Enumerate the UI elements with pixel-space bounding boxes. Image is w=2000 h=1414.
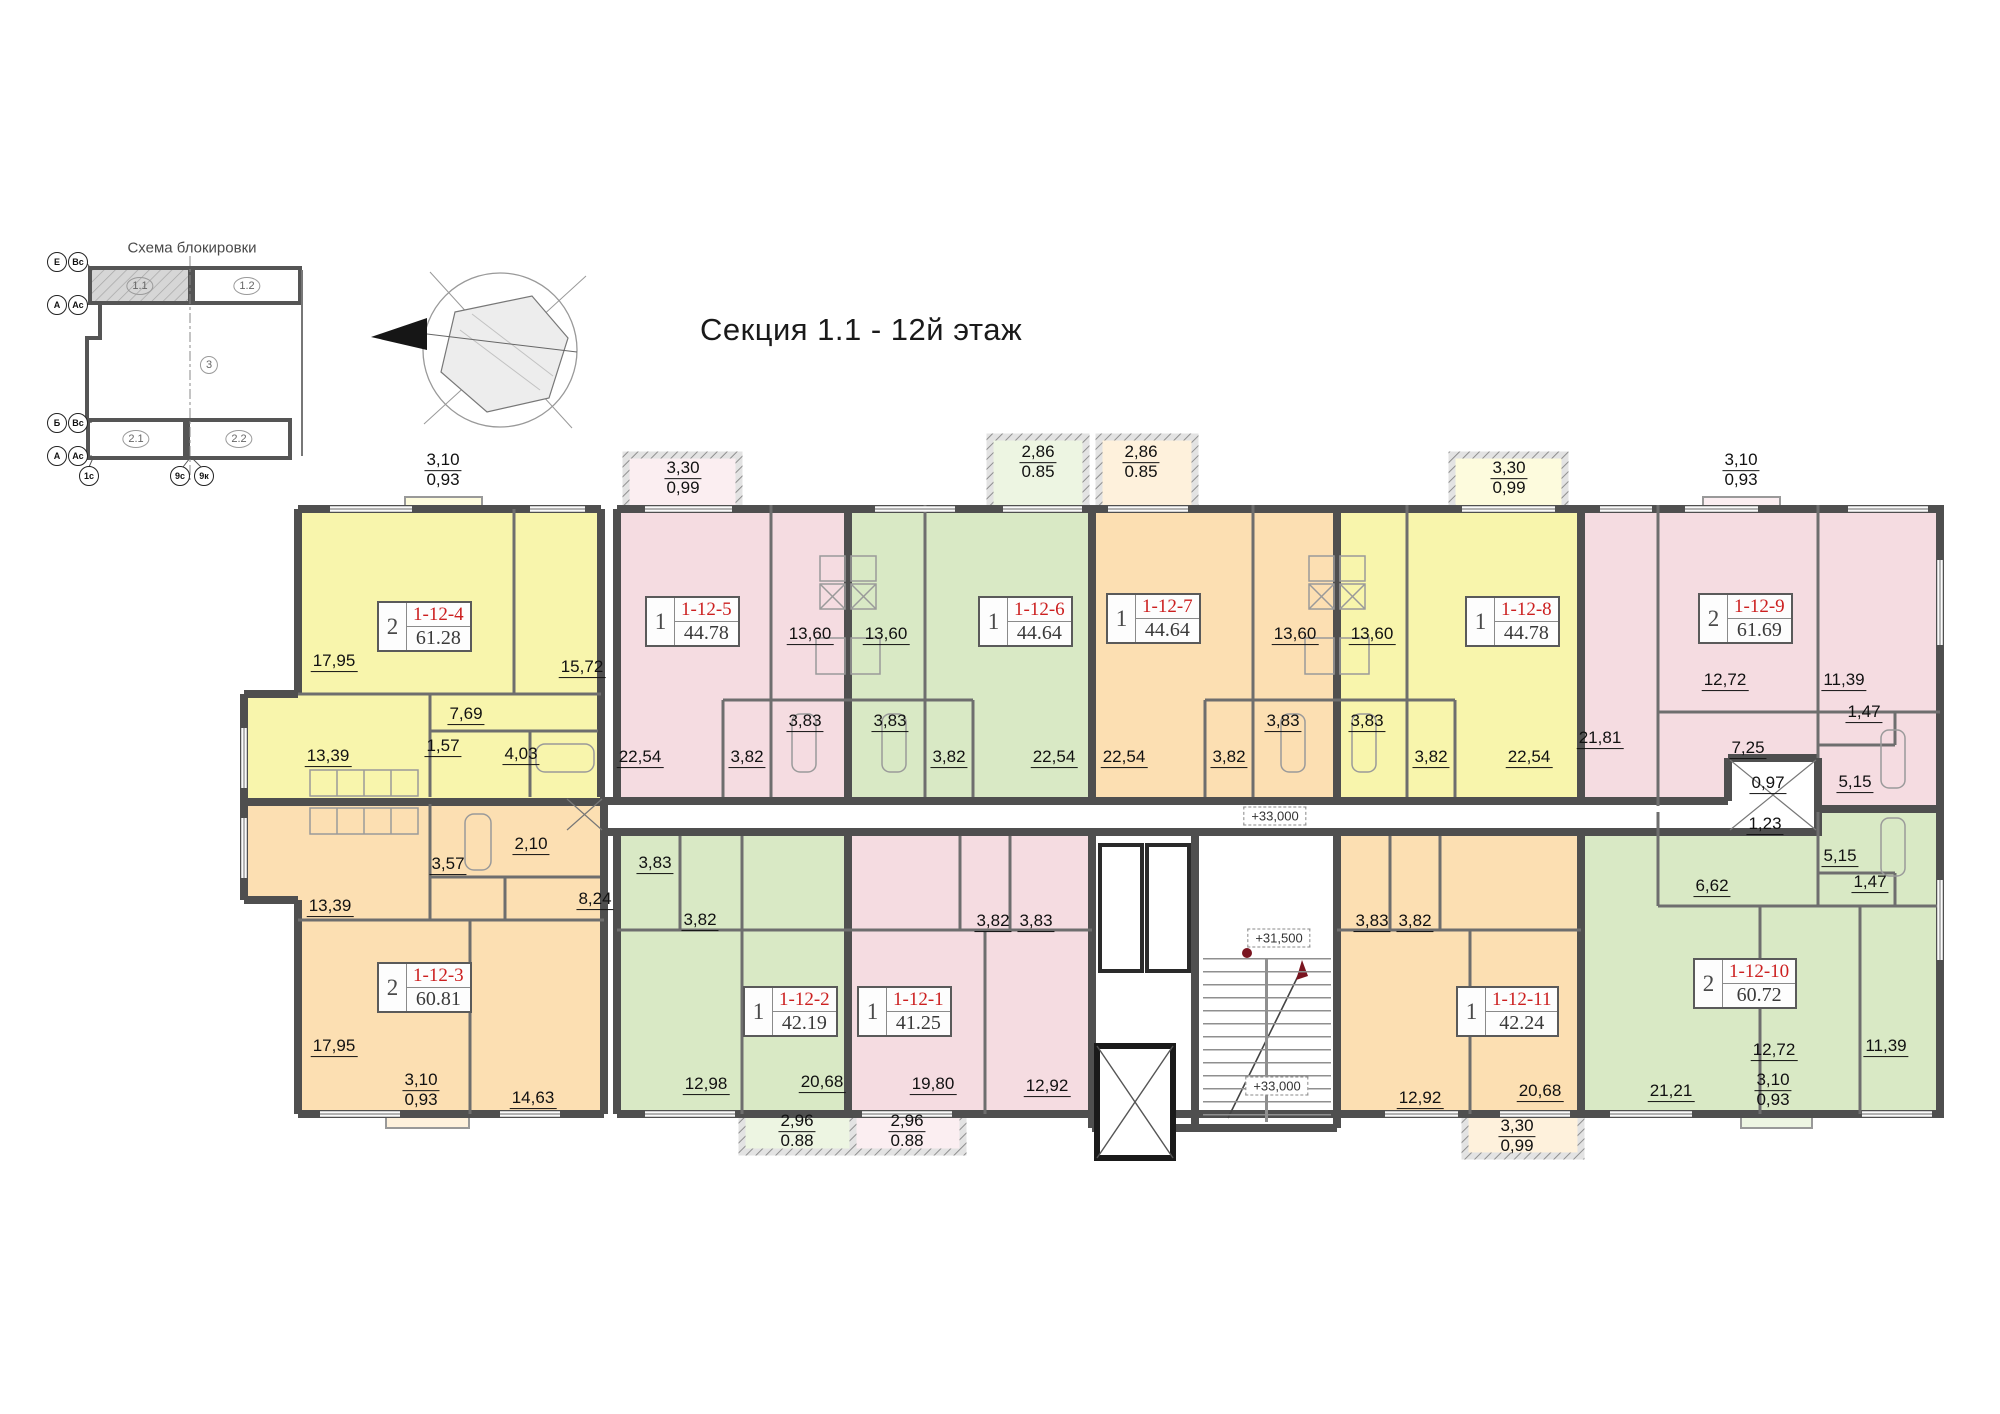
axis-bubble-А: А: [47, 295, 67, 315]
balcony-area-label: 3,100,93: [424, 451, 461, 489]
room-area-label: 12,72: [1751, 1041, 1798, 1061]
room-area-label: 21,21: [1648, 1082, 1695, 1102]
block-scheme-title: Схема блокировки: [127, 240, 256, 257]
room-area-value: 2,10: [512, 835, 549, 855]
room-area-value: 3,83: [636, 854, 673, 874]
room-area-label: 3,82: [974, 912, 1011, 932]
balcony-area-full: 3,10: [424, 451, 461, 471]
room-area-label: 3,83: [786, 712, 823, 732]
room-area-value: 0,97: [1749, 774, 1786, 794]
balcony-area-full: 2,86: [1019, 443, 1056, 463]
room-area-label: 2,10: [512, 835, 549, 855]
apartment-stamp-1-12-5: 11-12-544.78: [645, 596, 740, 647]
balcony-area-reduced: 0,93: [1724, 471, 1757, 489]
room-area-label: 3,82: [930, 748, 967, 768]
elevation-mark: +31,500: [1247, 929, 1310, 948]
room-area-label: 1,47: [1845, 703, 1882, 723]
apartment-area: 42.24: [1486, 1012, 1557, 1035]
room-area-label: 3,57: [429, 855, 466, 875]
room-area-value: 3,57: [429, 855, 466, 875]
room-count: 1: [1467, 598, 1495, 645]
apartment-stamp-1-12-3: 21-12-360.81: [377, 962, 472, 1013]
scheme-section-1.1: 1.1: [126, 277, 153, 295]
room-area-value: 7,25: [1729, 739, 1766, 759]
room-area-label: 11,39: [1821, 671, 1866, 691]
room-area-value: 15,72: [559, 658, 606, 678]
apartment-number: 1-12-7: [1136, 595, 1199, 619]
room-area-value: 11,39: [1821, 671, 1866, 691]
room-area-value: 3,83: [1353, 912, 1390, 932]
balcony-area-full: 3,30: [664, 459, 701, 479]
balcony-area-reduced: 0,93: [404, 1091, 437, 1109]
axis-bubble-Б: Б: [47, 413, 67, 433]
room-count: 2: [1700, 595, 1728, 642]
room-count: 1: [859, 988, 887, 1035]
room-area-label: 5,15: [1821, 847, 1858, 867]
room-area-label: 13,60: [787, 625, 834, 645]
apartment-area: 60.72: [1723, 984, 1795, 1007]
balcony-area-full: 2,86: [1122, 443, 1159, 463]
room-area-value: 12,98: [683, 1075, 730, 1095]
apartment-area: 44.78: [675, 622, 738, 645]
room-area-value: 13,39: [307, 897, 354, 917]
page-title: Секция 1.1 - 12й этаж: [700, 312, 1022, 348]
room-area-label: 6,62: [1693, 877, 1730, 897]
room-area-value: 13,60: [1272, 625, 1319, 645]
room-area-label: 13,60: [1272, 625, 1319, 645]
axis-bubble-Вс: Вс: [68, 413, 88, 433]
scheme-section-1.2: 1.2: [233, 277, 260, 295]
room-area-value: 22,54: [1031, 748, 1078, 768]
balcony-area-reduced: 0.85: [1021, 463, 1054, 481]
room-count: 1: [980, 598, 1008, 645]
apartment-stamp-1-12-9: 21-12-961.69: [1698, 593, 1793, 644]
room-area-value: 20,68: [1517, 1082, 1564, 1102]
label-overlay: Секция 1.1 - 12й этаж Схема блокировки 1…: [0, 0, 2000, 1414]
room-area-label: 20,68: [799, 1073, 846, 1093]
balcony-area-reduced: 0.88: [890, 1132, 923, 1150]
apartment-stamp-1-12-1: 11-12-141.25: [857, 986, 952, 1037]
apartment-number: 1-12-1: [887, 988, 950, 1012]
room-area-label: 22,54: [1506, 748, 1553, 768]
room-count: 1: [745, 988, 773, 1035]
room-area-label: 22,54: [1031, 748, 1078, 768]
room-area-value: 13,60: [1349, 625, 1396, 645]
balcony-area-full: 3,10: [1754, 1071, 1791, 1091]
room-area-label: 7,69: [447, 705, 484, 725]
room-area-value: 12,92: [1024, 1077, 1071, 1097]
scheme-section-3: 3: [200, 356, 218, 374]
room-area-label: 21,81: [1577, 729, 1624, 749]
room-area-value: 5,15: [1836, 773, 1873, 793]
room-area-value: 17,95: [311, 1037, 358, 1057]
room-area-value: 3,82: [1396, 912, 1433, 932]
room-area-value: 20,68: [799, 1073, 846, 1093]
room-area-value: 12,72: [1702, 671, 1749, 691]
room-area-label: 3,83: [1353, 912, 1390, 932]
room-area-label: 3,83: [871, 712, 908, 732]
room-area-value: 12,92: [1397, 1089, 1444, 1109]
room-area-value: 12,72: [1751, 1041, 1798, 1061]
room-area-value: 22,54: [1101, 748, 1148, 768]
axis-bubble-Ас: Ас: [68, 446, 88, 466]
room-area-value: 6,62: [1693, 877, 1730, 897]
axis-bubble-1с: 1с: [79, 466, 99, 486]
apartment-stamp-1-12-8: 11-12-844.78: [1465, 596, 1560, 647]
room-area-label: 1,57: [424, 737, 461, 757]
room-area-label: 20,68: [1517, 1082, 1564, 1102]
room-area-label: 12,92: [1397, 1089, 1444, 1109]
room-area-label: 3,82: [1412, 748, 1449, 768]
elevation-mark: +33,000: [1245, 1077, 1308, 1096]
room-area-label: 19,80: [910, 1075, 957, 1095]
room-area-value: 3,82: [1412, 748, 1449, 768]
balcony-area-full: 3,30: [1498, 1117, 1535, 1137]
room-area-label: 13,39: [305, 747, 352, 767]
room-area-value: 3,82: [930, 748, 967, 768]
room-area-label: 11,39: [1863, 1037, 1908, 1057]
room-area-value: 1,47: [1851, 873, 1888, 893]
apartment-number: 1-12-8: [1495, 598, 1558, 622]
room-area-label: 1,23: [1746, 815, 1783, 835]
balcony-area-full: 3,30: [1490, 459, 1527, 479]
room-area-value: 3,82: [1210, 748, 1247, 768]
room-area-value: 3,82: [974, 912, 1011, 932]
balcony-area-label: 3,300,99: [1490, 459, 1527, 497]
room-area-label: 12,72: [1702, 671, 1749, 691]
balcony-area-label: 3,100,93: [1754, 1071, 1791, 1109]
room-area-value: 5,15: [1821, 847, 1858, 867]
room-count: 1: [647, 598, 675, 645]
axis-bubble-Е: Е: [47, 252, 67, 272]
apartment-stamp-1-12-6: 11-12-644.64: [978, 596, 1073, 647]
balcony-area-full: 3,10: [1722, 451, 1759, 471]
balcony-area-reduced: 0,99: [1500, 1137, 1533, 1155]
apartment-area: 61.69: [1728, 619, 1791, 642]
apartment-number: 1-12-9: [1728, 595, 1791, 619]
room-area-label: 14,63: [510, 1089, 557, 1109]
room-area-value: 11,39: [1863, 1037, 1908, 1057]
balcony-area-label: 3,100,93: [1722, 451, 1759, 489]
apartment-number: 1-12-10: [1723, 960, 1795, 984]
room-area-value: 13,60: [787, 625, 834, 645]
room-area-value: 8,24: [576, 890, 613, 910]
room-area-label: 3,83: [1348, 712, 1385, 732]
apartment-number: 1-12-11: [1486, 988, 1557, 1012]
room-area-label: 3,82: [1210, 748, 1247, 768]
room-area-value: 3,83: [871, 712, 908, 732]
room-area-value: 3,82: [728, 748, 765, 768]
room-area-label: 8,24: [576, 890, 613, 910]
room-area-label: 17,95: [311, 652, 358, 672]
apartment-area: 61.28: [407, 627, 470, 650]
room-area-label: 12,98: [683, 1075, 730, 1095]
room-area-value: 3,83: [1017, 912, 1054, 932]
apartment-stamp-1-12-7: 11-12-744.64: [1106, 593, 1201, 644]
room-area-label: 3,83: [1264, 712, 1301, 732]
apartment-area: 60.81: [407, 988, 470, 1011]
apartment-area: 44.78: [1495, 622, 1558, 645]
room-area-label: 22,54: [617, 748, 664, 768]
axis-bubble-9к: 9к: [194, 466, 214, 486]
balcony-area-full: 2,96: [778, 1112, 815, 1132]
room-area-value: 19,80: [910, 1075, 957, 1095]
room-count: 2: [379, 964, 407, 1011]
balcony-area-reduced: 0,93: [426, 471, 459, 489]
room-area-label: 17,95: [311, 1037, 358, 1057]
room-area-value: 21,21: [1648, 1082, 1695, 1102]
room-area-value: 1,47: [1845, 703, 1882, 723]
balcony-area-reduced: 0.85: [1124, 463, 1157, 481]
room-area-label: 4,03: [502, 745, 539, 765]
room-area-label: 3,83: [1017, 912, 1054, 932]
balcony-area-label: 3,100,93: [402, 1071, 439, 1109]
room-count: 1: [1458, 988, 1486, 1035]
room-count: 1: [1108, 595, 1136, 642]
balcony-area-reduced: 0.88: [780, 1132, 813, 1150]
room-area-value: 21,81: [1577, 729, 1624, 749]
room-area-value: 14,63: [510, 1089, 557, 1109]
balcony-area-label: 3,300,99: [664, 459, 701, 497]
balcony-area-label: 2,860.85: [1122, 443, 1159, 481]
room-area-label: 7,25: [1729, 739, 1766, 759]
apartment-number: 1-12-6: [1008, 598, 1071, 622]
apartment-stamp-1-12-11: 11-12-1142.24: [1456, 986, 1559, 1037]
room-count: 2: [1695, 960, 1723, 1007]
balcony-area-full: 3,10: [402, 1071, 439, 1091]
apartment-number: 1-12-3: [407, 964, 470, 988]
room-area-value: 13,60: [863, 625, 910, 645]
room-area-label: 0,97: [1749, 774, 1786, 794]
apartment-stamp-1-12-2: 11-12-242.19: [743, 986, 838, 1037]
balcony-area-label: 3,300,99: [1498, 1117, 1535, 1155]
room-area-label: 13,39: [307, 897, 354, 917]
room-area-value: 3,83: [1348, 712, 1385, 732]
balcony-area-reduced: 0,99: [666, 479, 699, 497]
room-area-label: 22,54: [1101, 748, 1148, 768]
room-area-label: 1,47: [1851, 873, 1888, 893]
room-area-label: 5,15: [1836, 773, 1873, 793]
apartment-stamp-1-12-4: 21-12-461.28: [377, 601, 472, 652]
scheme-section-2.1: 2.1: [122, 430, 149, 448]
axis-bubble-Ас: Ас: [68, 295, 88, 315]
room-area-label: 3,82: [681, 911, 718, 931]
apartment-area: 41.25: [887, 1012, 950, 1035]
room-area-value: 3,82: [681, 911, 718, 931]
apartment-number: 1-12-4: [407, 603, 470, 627]
apartment-area: 42.19: [773, 1012, 836, 1035]
room-area-label: 15,72: [559, 658, 606, 678]
room-area-label: 13,60: [1349, 625, 1396, 645]
room-area-value: 3,83: [786, 712, 823, 732]
room-area-value: 1,57: [424, 737, 461, 757]
balcony-area-reduced: 0,99: [1492, 479, 1525, 497]
room-area-value: 22,54: [617, 748, 664, 768]
floor-plan-page: Секция 1.1 - 12й этаж Схема блокировки 1…: [0, 0, 2000, 1414]
axis-bubble-Вс: Вс: [68, 252, 88, 272]
room-area-value: 1,23: [1746, 815, 1783, 835]
balcony-area-label: 2,860.85: [1019, 443, 1056, 481]
apartment-stamp-1-12-10: 21-12-1060.72: [1693, 958, 1797, 1009]
axis-bubble-А: А: [47, 446, 67, 466]
balcony-area-label: 2,960.88: [888, 1112, 925, 1150]
room-area-value: 4,03: [502, 745, 539, 765]
balcony-area-full: 2,96: [888, 1112, 925, 1132]
room-area-label: 13,60: [863, 625, 910, 645]
apartment-area: 44.64: [1136, 619, 1199, 642]
room-area-label: 3,82: [1396, 912, 1433, 932]
apartment-number: 1-12-5: [675, 598, 738, 622]
room-area-label: 3,83: [636, 854, 673, 874]
elevation-mark: +33,000: [1243, 807, 1306, 826]
balcony-area-label: 2,960.88: [778, 1112, 815, 1150]
room-area-value: 22,54: [1506, 748, 1553, 768]
axis-bubble-9с: 9с: [170, 466, 190, 486]
room-area-label: 12,92: [1024, 1077, 1071, 1097]
room-area-value: 17,95: [311, 652, 358, 672]
room-count: 2: [379, 603, 407, 650]
room-area-value: 3,83: [1264, 712, 1301, 732]
apartment-area: 44.64: [1008, 622, 1071, 645]
balcony-area-reduced: 0,93: [1756, 1091, 1789, 1109]
scheme-section-2.2: 2.2: [225, 430, 252, 448]
apartment-number: 1-12-2: [773, 988, 836, 1012]
room-area-label: 3,82: [728, 748, 765, 768]
room-area-value: 7,69: [447, 705, 484, 725]
room-area-value: 13,39: [305, 747, 352, 767]
